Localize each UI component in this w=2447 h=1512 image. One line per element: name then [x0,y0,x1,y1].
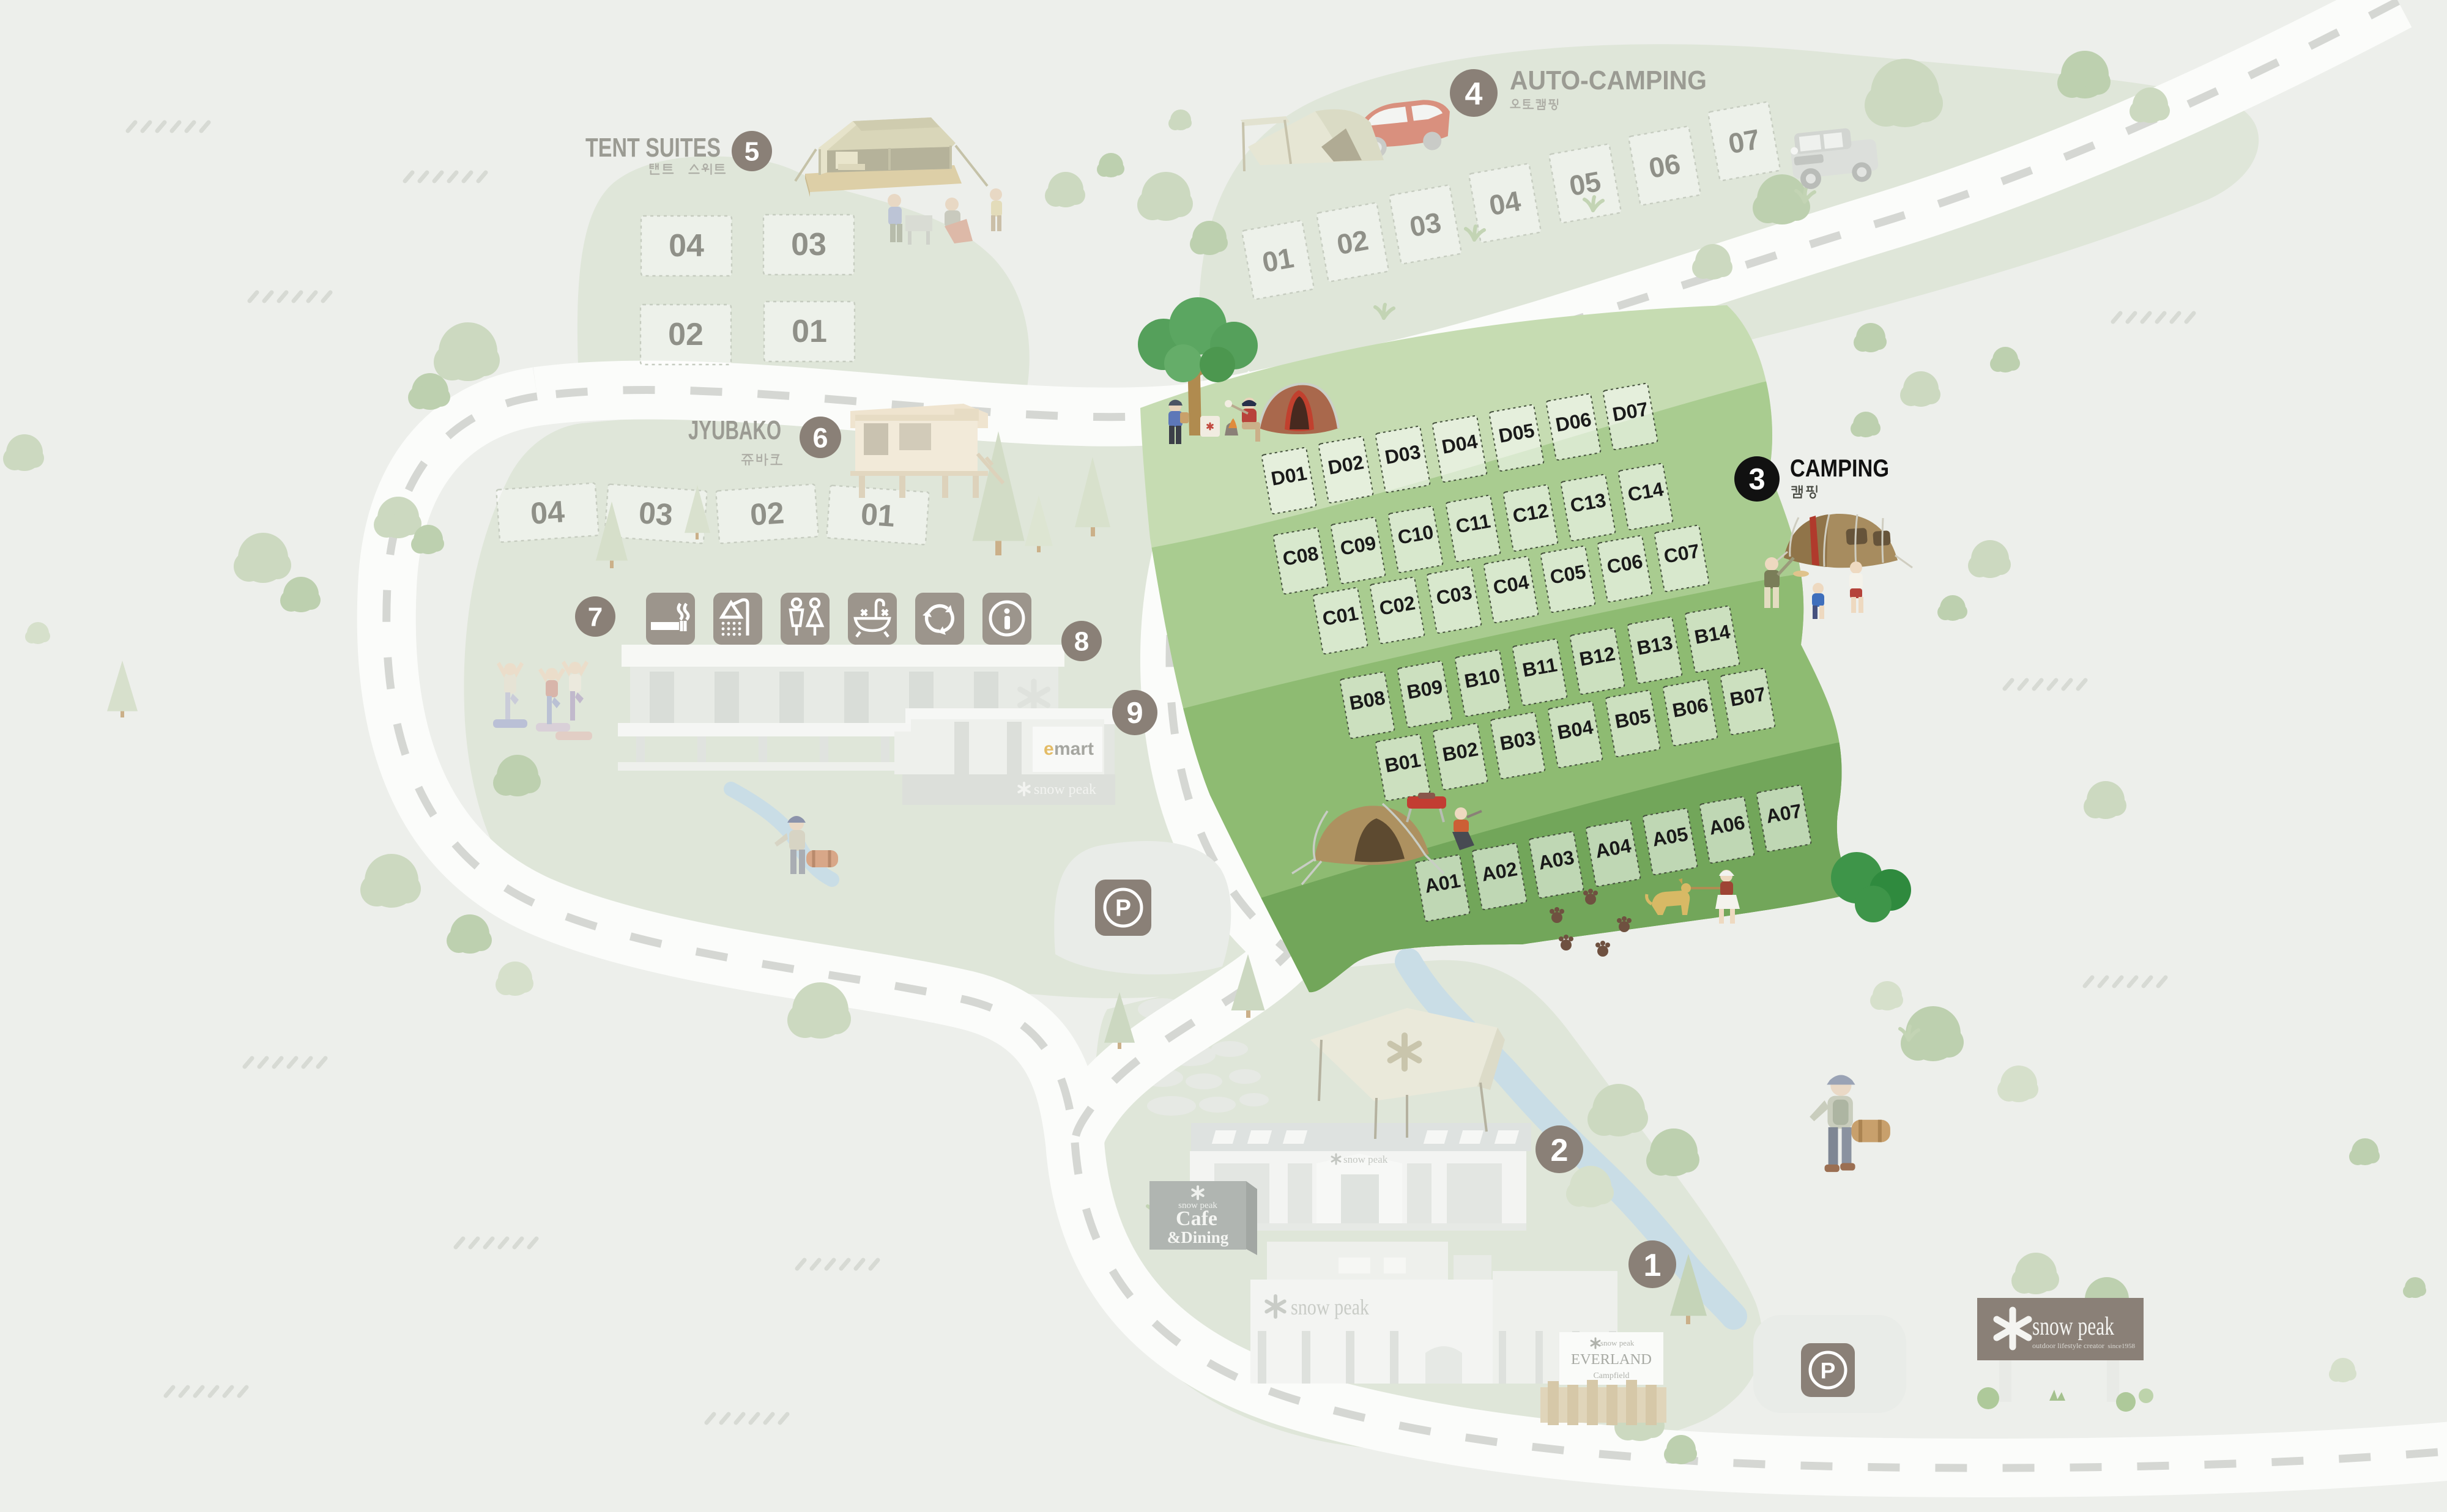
svg-text:02: 02 [1334,224,1370,261]
svg-text:02: 02 [668,317,704,352]
svg-text:8: 8 [1074,627,1089,657]
svg-text:snow peak: snow peak [2032,1313,2114,1341]
svg-text:&Dining: &Dining [1167,1228,1229,1247]
svg-text:P: P [1821,1358,1836,1384]
svg-text:snow peak: snow peak [1291,1295,1369,1319]
svg-text:3: 3 [1748,463,1765,496]
svg-text:mart: mart [1054,739,1094,759]
svg-text:04: 04 [1487,185,1523,221]
svg-text:03: 03 [1407,206,1443,243]
svg-text:JYUBAKO: JYUBAKO [688,415,781,445]
svg-text:Campfield: Campfield [1593,1371,1629,1380]
svg-text:EVERLAND: EVERLAND [1571,1352,1652,1368]
svg-text:01: 01 [1260,242,1296,278]
svg-text:04: 04 [669,228,704,264]
svg-text:snow peak: snow peak [1034,782,1096,798]
svg-text:2: 2 [1551,1133,1569,1168]
svg-text:e: e [1044,739,1054,759]
svg-text:snow peak: snow peak [1343,1154,1388,1165]
svg-text:7: 7 [588,602,603,632]
svg-text:01: 01 [792,314,827,349]
svg-text:06: 06 [1646,147,1682,184]
svg-text:01: 01 [860,497,896,533]
svg-text:Cafe: Cafe [1176,1207,1217,1230]
svg-text:since1958: since1958 [2107,1343,2135,1350]
svg-text:03: 03 [791,227,826,262]
svg-text:04: 04 [529,494,566,531]
svg-text:05: 05 [1567,165,1603,202]
svg-text:03: 03 [637,495,674,532]
svg-text:TENT SUITES: TENT SUITES [585,133,721,163]
svg-text:02: 02 [749,495,785,532]
svg-text:07: 07 [1726,123,1762,160]
svg-text:9: 9 [1126,697,1143,730]
svg-text:AUTO-CAMPING: AUTO-CAMPING [1510,65,1707,95]
svg-text:4: 4 [1465,76,1483,112]
svg-text:5: 5 [744,137,759,167]
svg-text:CAMPING: CAMPING [1790,455,1889,482]
svg-text:snow peak: snow peak [1600,1338,1635,1347]
svg-text:outdoor lifestyle creator: outdoor lifestyle creator [2032,1341,2104,1350]
svg-text:P: P [1115,895,1131,922]
svg-text:6: 6 [812,423,828,454]
svg-text:1: 1 [1644,1248,1662,1283]
